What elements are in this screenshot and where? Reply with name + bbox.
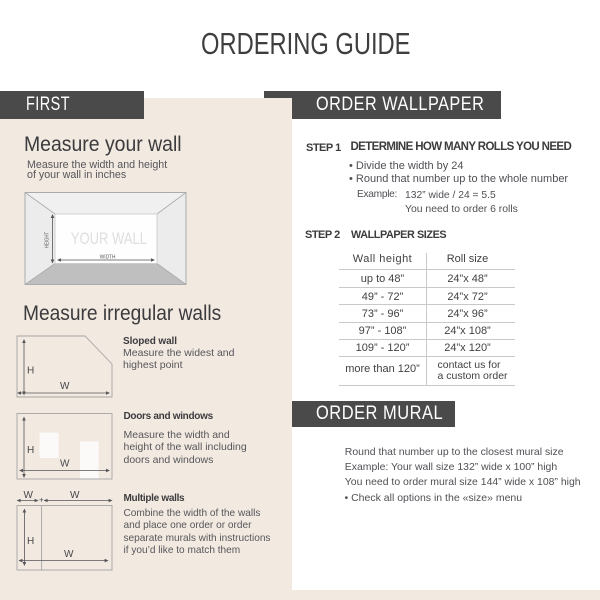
- svg-text:H: H: [27, 536, 34, 547]
- svg-text:W: W: [24, 490, 34, 501]
- svg-text:W: W: [60, 381, 70, 392]
- svg-text:YOUR WALL: YOUR WALL: [71, 230, 147, 248]
- svg-text:WIDTH: WIDTH: [100, 255, 116, 261]
- svg-text:W: W: [64, 549, 74, 560]
- svg-text:W: W: [70, 490, 80, 501]
- svg-text:W: W: [60, 459, 70, 470]
- svg-text:H: H: [27, 366, 34, 377]
- svg-text:+: +: [39, 496, 44, 505]
- svg-text:HEIGHT: HEIGHT: [45, 231, 51, 248]
- svg-text:H: H: [27, 445, 34, 456]
